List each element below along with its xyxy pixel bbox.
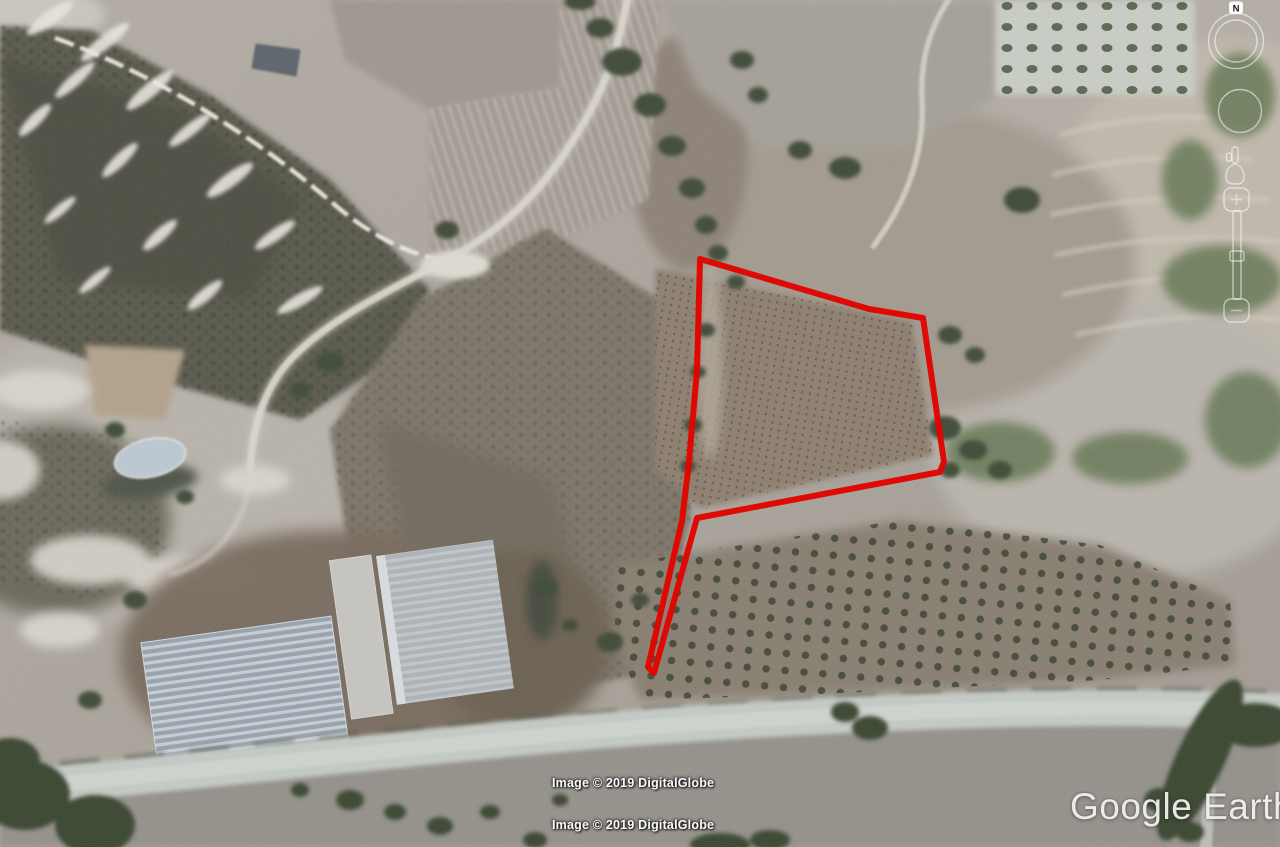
zoom-slider[interactable] xyxy=(1224,188,1249,322)
google-earth-logo: Google Earth xyxy=(1070,786,1280,828)
zoom-track[interactable] xyxy=(1233,211,1241,299)
compass-control[interactable]: N xyxy=(1209,2,1264,69)
compass-outer-ring-icon[interactable] xyxy=(1209,14,1264,69)
imagery-attribution: Image © 2019 DigitalGlobe xyxy=(552,818,714,832)
joystick-icon[interactable] xyxy=(1226,147,1244,184)
pan-ring-control[interactable] xyxy=(1219,90,1262,133)
plus-icon xyxy=(1231,194,1242,205)
zoom-handle[interactable] xyxy=(1230,251,1244,261)
earth-viewport[interactable]: N Image © 2019 DigitalGlobe Image © 2019… xyxy=(0,0,1280,847)
navigation-controls: N xyxy=(1188,0,1280,340)
north-label: N xyxy=(1233,4,1240,15)
compass-inner-ring-icon[interactable] xyxy=(1215,20,1257,62)
satellite-imagery xyxy=(0,0,1280,847)
imagery-attribution: Image © 2019 DigitalGlobe xyxy=(552,776,714,790)
